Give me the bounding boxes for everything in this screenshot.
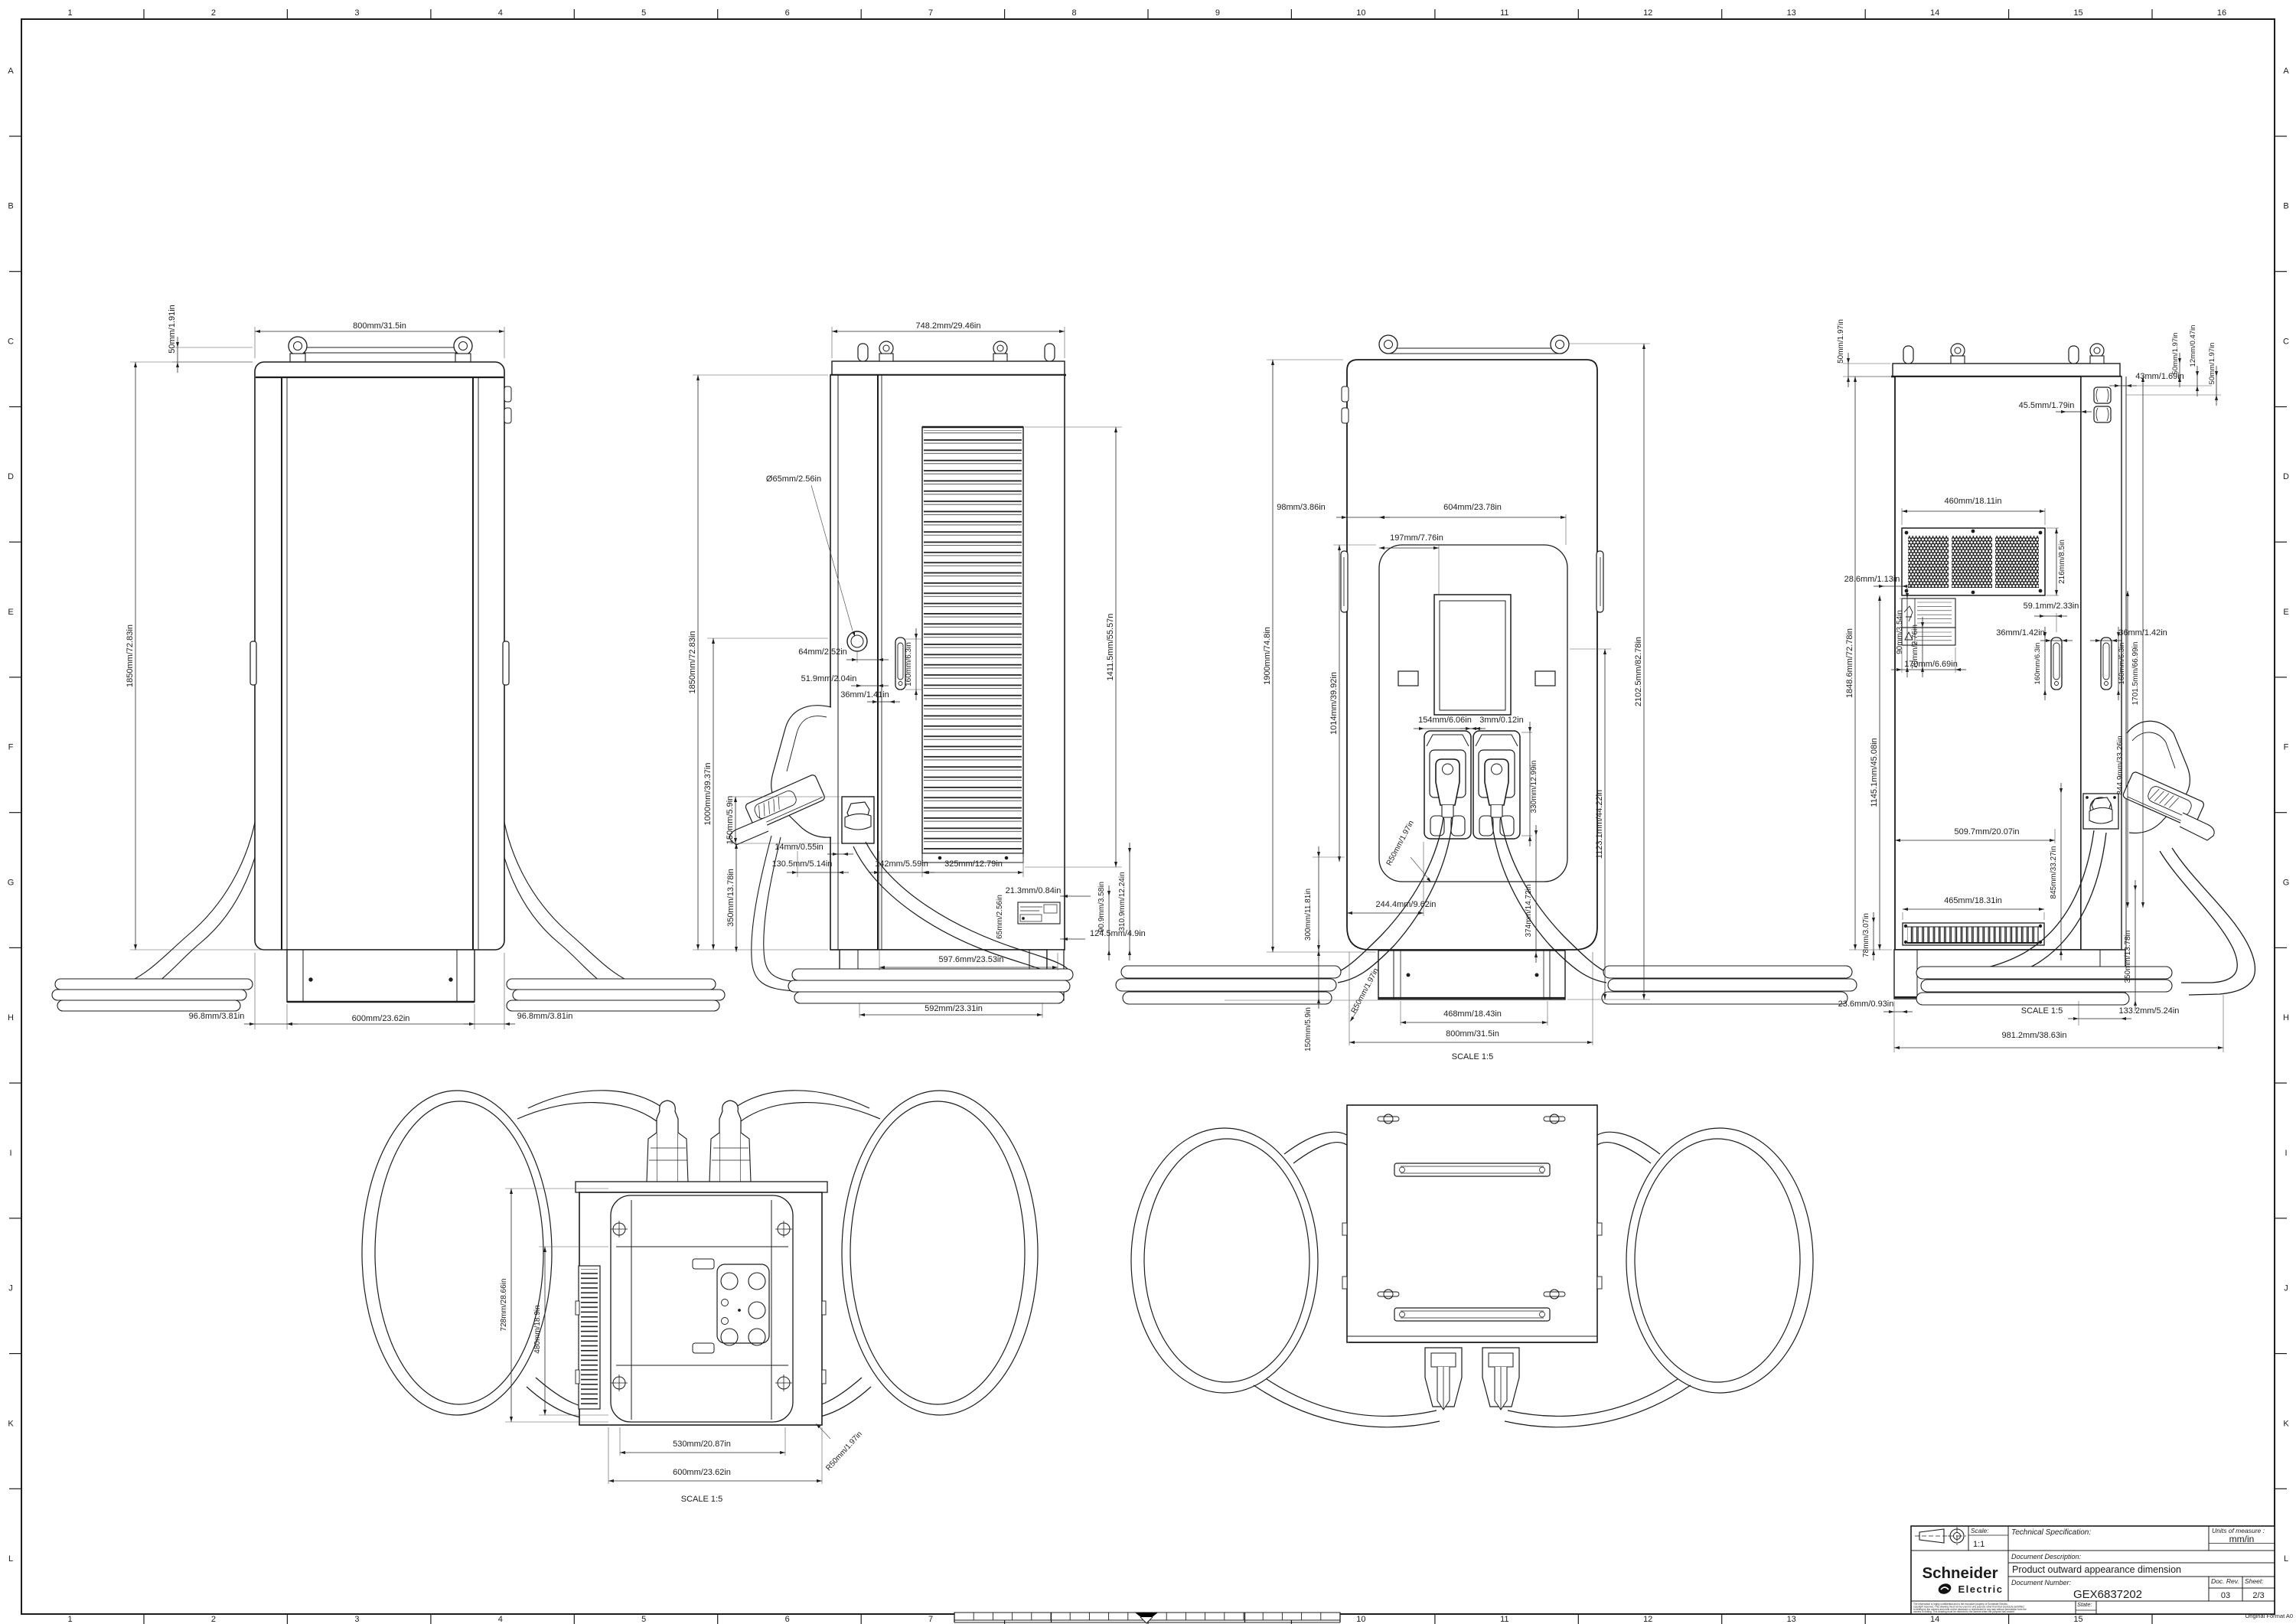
svg-text:3: 3 (354, 8, 359, 18)
svg-text:604mm/23.78in: 604mm/23.78in (1443, 503, 1502, 512)
svg-text:3: 3 (354, 1615, 359, 1624)
svg-text:592mm/23.31in: 592mm/23.31in (925, 1004, 983, 1013)
svg-text:5: 5 (641, 1615, 646, 1624)
svg-text:1900mm/74.8in: 1900mm/74.8in (1263, 627, 1272, 685)
svg-text:728mm/28.66in: 728mm/28.66in (500, 1279, 508, 1332)
svg-text:C: C (8, 338, 14, 347)
svg-text:10: 10 (1356, 1615, 1365, 1624)
svg-text:F: F (2284, 743, 2289, 752)
svg-text:E: E (8, 608, 13, 617)
svg-text:SCALE 1:5: SCALE 1:5 (681, 1495, 722, 1504)
svg-text:16: 16 (2217, 8, 2226, 18)
svg-text:4: 4 (498, 1615, 503, 1624)
svg-text:2102.5mm/82.78in: 2102.5mm/82.78in (1634, 637, 1643, 706)
svg-text:10: 10 (1356, 8, 1365, 18)
svg-text:154mm/6.06in: 154mm/6.06in (1418, 716, 1472, 725)
svg-text:14: 14 (1930, 8, 1939, 18)
svg-text:197mm/7.76in: 197mm/7.76in (1390, 533, 1443, 543)
svg-text:Document Number:: Document Number: (2011, 1579, 2072, 1586)
svg-text:845mm/33.27in: 845mm/33.27in (2050, 846, 2058, 899)
svg-text:28.6mm/1.13in: 28.6mm/1.13in (1844, 575, 1900, 584)
svg-text:5: 5 (641, 8, 646, 18)
svg-text:L: L (8, 1554, 13, 1564)
svg-text:15: 15 (2073, 1615, 2082, 1624)
svg-text:65mm/2.56in: 65mm/2.56in (996, 895, 1004, 939)
svg-text:50mm/1.91in: 50mm/1.91in (168, 305, 177, 354)
svg-text:Ø65mm/2.56in: Ø65mm/2.56in (766, 474, 821, 484)
svg-text:1123.1mm/44.22in: 1123.1mm/44.22in (1595, 790, 1604, 859)
svg-text:3mm/0.12in: 3mm/0.12in (1479, 716, 1523, 725)
svg-text:E: E (2283, 608, 2288, 617)
svg-text:C: C (2283, 338, 2289, 347)
svg-text:15: 15 (2073, 8, 2082, 18)
svg-text:1145.1mm/45.08in: 1145.1mm/45.08in (1870, 738, 1879, 807)
svg-text:H: H (8, 1013, 14, 1022)
svg-text:150mm/5.9in: 150mm/5.9in (726, 796, 735, 845)
svg-text:1000mm/39.37in: 1000mm/39.37in (703, 763, 713, 826)
svg-text:GEX6837202: GEX6837202 (2073, 1588, 2142, 1601)
svg-text:160mm/6.3in: 160mm/6.3in (2118, 643, 2126, 685)
svg-text:mm/in: mm/in (2229, 1534, 2255, 1544)
svg-text:98mm/3.86in: 98mm/3.86in (1277, 503, 1326, 512)
svg-text:96.8mm/3.81in: 96.8mm/3.81in (517, 1012, 573, 1021)
svg-text:H: H (2283, 1013, 2289, 1022)
svg-text:51.9mm/2.04in: 51.9mm/2.04in (801, 674, 857, 683)
svg-text:350mm/13.78in: 350mm/13.78in (726, 869, 735, 927)
svg-text:6: 6 (785, 8, 790, 18)
svg-text:465mm/18.31in: 465mm/18.31in (1944, 896, 2002, 905)
svg-text:600mm/23.62in: 600mm/23.62in (352, 1014, 410, 1023)
svg-text:J: J (2284, 1284, 2288, 1293)
svg-text:B: B (8, 202, 13, 211)
svg-text:1411.5mm/55.57n: 1411.5mm/55.57n (1106, 614, 1115, 681)
svg-text:A: A (2283, 67, 2289, 76)
svg-text:480mm/18.9in: 480mm/18.9in (533, 1305, 542, 1353)
svg-text:Document Description:: Document Description: (2011, 1553, 2082, 1560)
svg-text:374mm/14.72in: 374mm/14.72in (1525, 885, 1533, 938)
svg-text:K: K (2283, 1419, 2289, 1428)
svg-text:1848.6mm/72.78in: 1848.6mm/72.78in (1845, 628, 1854, 698)
svg-text:36mm/1.41in: 36mm/1.41in (840, 690, 889, 699)
svg-text:8: 8 (1071, 8, 1076, 18)
svg-text:G: G (8, 878, 15, 887)
svg-text:K: K (8, 1419, 14, 1428)
svg-text:800mm/31.5in: 800mm/31.5in (1446, 1029, 1499, 1039)
svg-text:160mm/6.3in: 160mm/6.3in (2033, 643, 2042, 685)
svg-text:12mm/0.47in: 12mm/0.47in (2189, 325, 2197, 367)
svg-text:23.6mm/0.93in: 23.6mm/0.93in (1838, 1000, 1894, 1009)
svg-text:Sheet:: Sheet: (2245, 1577, 2264, 1585)
svg-text:03: 03 (2221, 1591, 2230, 1600)
svg-text:64mm/2.52in: 64mm/2.52in (798, 647, 847, 657)
svg-text:350mm/13.78in: 350mm/13.78in (2124, 931, 2132, 983)
svg-text:36mm/1.42in: 36mm/1.42in (1996, 628, 2045, 638)
svg-text:SCALE 1:5: SCALE 1:5 (2021, 1006, 2063, 1016)
svg-text:844.9mm/33.26in: 844.9mm/33.26in (2116, 735, 2125, 794)
svg-text:Technical Specification:: Technical Specification: (2011, 1528, 2091, 1537)
svg-text:Scale:: Scale: (1971, 1527, 1989, 1534)
svg-text:130.5mm/5.14in: 130.5mm/5.14in (772, 859, 833, 869)
svg-text:13: 13 (1787, 8, 1796, 18)
svg-text:11: 11 (1500, 8, 1508, 18)
svg-text:981.2mm/38.63in: 981.2mm/38.63in (2002, 1031, 2067, 1040)
svg-text:597.6mm/23.53in: 597.6mm/23.53in (939, 955, 1004, 964)
svg-text:59.1mm/2.33in: 59.1mm/2.33in (2024, 602, 2079, 611)
svg-text:13: 13 (1787, 1615, 1796, 1624)
svg-text:468mm/18.43in: 468mm/18.43in (1443, 1009, 1502, 1019)
svg-text:I: I (2285, 1149, 2287, 1158)
svg-text:96.8mm/3.81in: 96.8mm/3.81in (189, 1012, 245, 1021)
svg-text:A: A (8, 67, 14, 76)
svg-text:244.4mm/9.62in: 244.4mm/9.62in (1376, 900, 1437, 909)
svg-text:21.3mm/0.84in: 21.3mm/0.84in (1006, 886, 1062, 895)
svg-text:2: 2 (211, 8, 216, 18)
svg-text:748.2mm/29.46in: 748.2mm/29.46in (916, 321, 981, 331)
svg-text:800mm/31.5in: 800mm/31.5in (353, 321, 406, 331)
svg-text:State:: State: (2077, 1601, 2092, 1608)
svg-text:90mm/3.54in: 90mm/3.54in (1896, 610, 1904, 654)
svg-text:50mm/1.97in: 50mm/1.97in (2208, 343, 2216, 385)
svg-text:L: L (2284, 1554, 2288, 1564)
svg-text:1: 1 (67, 1615, 72, 1624)
svg-text:509.7mm/20.07in: 509.7mm/20.07in (1955, 827, 2020, 836)
svg-text:9: 9 (1215, 8, 1220, 18)
svg-text:325mm/12.79in: 325mm/12.79in (944, 859, 1003, 869)
svg-text:Electric: Electric (1958, 1583, 2004, 1595)
svg-text:1850mm/72.83in: 1850mm/72.83in (126, 624, 135, 687)
svg-text:310.9mm/12.24in: 310.9mm/12.24in (1118, 872, 1127, 931)
svg-text:7: 7 (928, 8, 933, 18)
svg-text:4: 4 (498, 8, 503, 18)
svg-text:150mm/5.9in: 150mm/5.9in (1304, 1007, 1313, 1052)
svg-text:50mm/1.97in: 50mm/1.97in (1837, 319, 1845, 364)
svg-text:Product outward appearance dim: Product outward appearance dimension (2012, 1564, 2181, 1575)
svg-text:1850mm/72.83in: 1850mm/72.83in (688, 631, 697, 694)
svg-text:B: B (2283, 202, 2288, 211)
svg-text:142mm/5.59in: 142mm/5.59in (875, 859, 928, 869)
svg-text:SCALE 1:5: SCALE 1:5 (1452, 1052, 1493, 1061)
svg-text:330mm/12.99in: 330mm/12.99in (1530, 761, 1538, 814)
svg-text:45.5mm/1.79in: 45.5mm/1.79in (2019, 401, 2075, 410)
svg-text:530mm/20.87in: 530mm/20.87in (673, 1440, 731, 1449)
svg-text:11: 11 (1500, 1615, 1508, 1624)
svg-text:2: 2 (211, 1615, 216, 1624)
svg-text:I: I (9, 1149, 11, 1158)
svg-text:D: D (8, 472, 14, 481)
svg-text:300mm/11.81in: 300mm/11.81in (1304, 889, 1313, 941)
svg-text:50mm/1.97in: 50mm/1.97in (2171, 333, 2180, 375)
svg-text:1:1: 1:1 (1973, 1540, 1985, 1549)
svg-text:Schneider: Schneider (1922, 1564, 1998, 1582)
svg-text:D: D (2283, 472, 2289, 481)
svg-text:1014mm/39.92in: 1014mm/39.92in (1329, 672, 1339, 735)
svg-text:90.9mm/3.58in: 90.9mm/3.58in (1097, 882, 1106, 932)
svg-text:600mm/23.62in: 600mm/23.62in (673, 1468, 731, 1477)
svg-text:Doc. Rev.: Doc. Rev. (2211, 1577, 2239, 1585)
svg-text:7: 7 (928, 1615, 933, 1624)
svg-text:78mm/3.07in: 78mm/3.07in (1862, 913, 1870, 957)
svg-text:J: J (8, 1284, 13, 1293)
svg-text:14: 14 (1930, 1615, 1939, 1624)
svg-text:170mm/6.69in: 170mm/6.69in (1904, 660, 1958, 669)
svg-text:G: G (2283, 878, 2290, 887)
svg-text:F: F (8, 743, 14, 752)
svg-text:owners in writing. This drawi: owners in writing. This drawing must be … (1913, 1610, 2015, 1613)
svg-text:1701.5mm/66.99in: 1701.5mm/66.99in (2131, 642, 2140, 706)
svg-text:6: 6 (785, 1615, 790, 1624)
svg-text:1: 1 (67, 8, 72, 18)
svg-text:133.2mm/5.24in: 133.2mm/5.24in (2119, 1006, 2180, 1016)
svg-text:460mm/18.11in: 460mm/18.11in (1944, 497, 2001, 506)
svg-text:160mm/6.3in: 160mm/6.3in (905, 642, 913, 686)
svg-text:12: 12 (1643, 1615, 1652, 1624)
svg-text:216mm/8.5in: 216mm/8.5in (2058, 540, 2066, 584)
svg-text:12: 12 (1643, 8, 1652, 18)
svg-text:14mm/0.55in: 14mm/0.55in (775, 843, 823, 852)
svg-text:2/3: 2/3 (2252, 1591, 2264, 1600)
